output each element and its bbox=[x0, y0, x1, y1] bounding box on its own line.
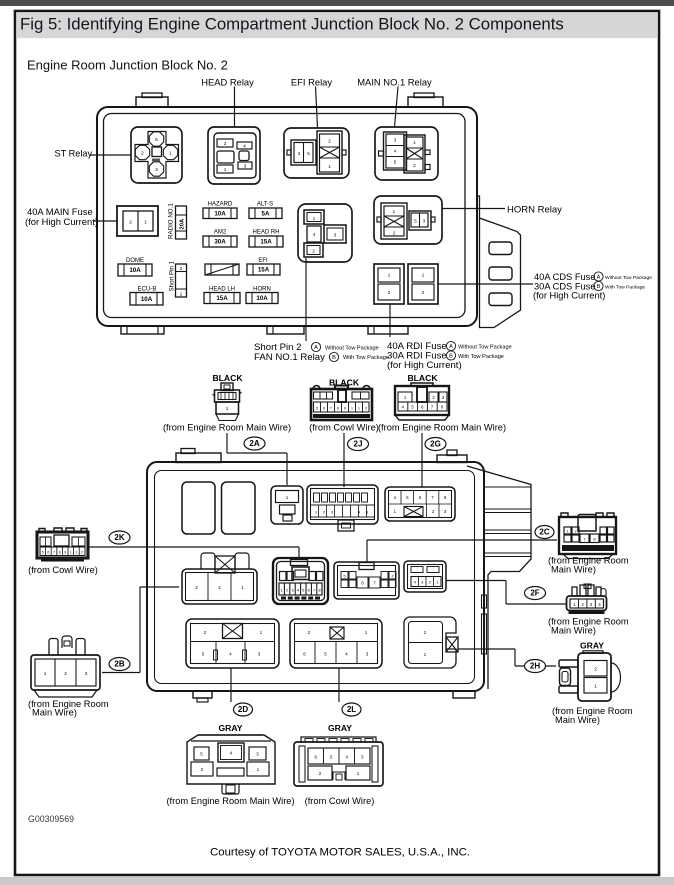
svg-text:G00309569: G00309569 bbox=[28, 814, 74, 824]
svg-text:2: 2 bbox=[388, 290, 391, 295]
svg-text:Fig 5: Identifying Engine Comp: Fig 5: Identifying Engine Compartment Ju… bbox=[20, 15, 564, 34]
svg-text:6: 6 bbox=[323, 407, 325, 411]
svg-text:8: 8 bbox=[337, 407, 339, 411]
svg-text:1: 1 bbox=[281, 589, 283, 593]
svg-text:HORN: HORN bbox=[253, 287, 271, 293]
svg-text:Short Pin 1: Short Pin 1 bbox=[169, 260, 176, 291]
svg-text:7: 7 bbox=[313, 589, 315, 593]
svg-text:5: 5 bbox=[155, 137, 158, 143]
svg-text:GRAY: GRAY bbox=[328, 723, 352, 733]
svg-text:Engine Room Junction Block No.: Engine Room Junction Block No. 2 bbox=[27, 58, 228, 73]
svg-text:2A: 2A bbox=[249, 439, 259, 448]
svg-text:10A: 10A bbox=[141, 296, 153, 303]
svg-text:5: 5 bbox=[42, 551, 44, 555]
svg-text:2: 2 bbox=[365, 407, 367, 411]
svg-text:2: 2 bbox=[141, 151, 144, 157]
svg-text:(from Cowl Wire): (from Cowl Wire) bbox=[28, 565, 98, 575]
svg-text:A: A bbox=[449, 344, 453, 350]
svg-text:2: 2 bbox=[422, 290, 425, 295]
svg-text:With Tow Package: With Tow Package bbox=[343, 355, 389, 361]
svg-text:Courtesy of TOYOTA MOTOR SALES: Courtesy of TOYOTA MOTOR SALES, U.S.A., … bbox=[210, 847, 470, 859]
svg-text:1: 1 bbox=[226, 406, 229, 411]
svg-text:B: B bbox=[332, 355, 336, 361]
svg-text:Main Wire): Main Wire) bbox=[551, 626, 596, 636]
svg-text:B: B bbox=[597, 284, 601, 290]
svg-text:HEAD Relay: HEAD Relay bbox=[201, 77, 254, 88]
svg-text:(from Cowl Wire): (from Cowl Wire) bbox=[305, 796, 375, 806]
svg-text:7: 7 bbox=[53, 551, 55, 555]
svg-text:2L: 2L bbox=[347, 705, 356, 714]
svg-text:1: 1 bbox=[144, 220, 147, 225]
svg-text:3: 3 bbox=[244, 164, 247, 169]
svg-text:1: 1 bbox=[44, 671, 47, 676]
svg-text:2G: 2G bbox=[430, 440, 441, 449]
svg-text:Main Wire): Main Wire) bbox=[551, 565, 596, 575]
svg-text:5: 5 bbox=[302, 589, 304, 593]
svg-text:2C: 2C bbox=[539, 528, 549, 537]
svg-text:2: 2 bbox=[129, 220, 132, 225]
svg-text:4: 4 bbox=[297, 589, 299, 593]
svg-text:(from Engine Room Main Wire): (from Engine Room Main Wire) bbox=[378, 423, 506, 433]
svg-text:10A: 10A bbox=[129, 267, 141, 274]
svg-text:A: A bbox=[314, 345, 318, 351]
svg-text:EFI Relay: EFI Relay bbox=[291, 77, 332, 88]
svg-text:1: 1 bbox=[180, 292, 183, 298]
svg-text:40A CDS Fuse: 40A CDS Fuse bbox=[534, 272, 596, 282]
svg-text:BLACK: BLACK bbox=[212, 373, 243, 383]
svg-text:ALT-S: ALT-S bbox=[257, 202, 273, 208]
svg-text:2: 2 bbox=[328, 139, 331, 144]
svg-text:1: 1 bbox=[169, 151, 172, 157]
svg-text:1: 1 bbox=[328, 164, 331, 169]
svg-text:BLACK: BLACK bbox=[407, 373, 438, 383]
svg-text:2: 2 bbox=[224, 141, 227, 146]
svg-text:2F: 2F bbox=[530, 589, 539, 598]
svg-text:1: 1 bbox=[422, 273, 425, 278]
svg-text:3: 3 bbox=[291, 589, 293, 593]
svg-text:FAN NO.1 Relay: FAN NO.1 Relay bbox=[254, 352, 325, 363]
svg-text:2: 2 bbox=[64, 671, 67, 676]
svg-text:10A: 10A bbox=[256, 295, 268, 302]
svg-text:HEAD LH: HEAD LH bbox=[209, 287, 235, 293]
svg-text:10A: 10A bbox=[214, 210, 226, 217]
svg-text:2H: 2H bbox=[530, 662, 540, 671]
svg-text:(for High Current): (for High Current) bbox=[533, 291, 605, 301]
svg-text:6: 6 bbox=[308, 589, 310, 593]
svg-text:(for High Current): (for High Current) bbox=[387, 360, 462, 371]
svg-text:B: B bbox=[449, 354, 453, 360]
svg-text:Without Tow Package: Without Tow Package bbox=[325, 346, 379, 352]
svg-text:2: 2 bbox=[594, 667, 597, 672]
svg-text:Without Tow Package: Without Tow Package bbox=[605, 275, 652, 281]
svg-text:2: 2 bbox=[391, 574, 393, 578]
svg-text:20A: 20A bbox=[180, 218, 186, 229]
svg-text:1: 1 bbox=[388, 273, 391, 278]
svg-text:3: 3 bbox=[85, 671, 88, 676]
svg-text:2: 2 bbox=[574, 530, 576, 534]
svg-text:2J: 2J bbox=[354, 440, 363, 449]
svg-text:9: 9 bbox=[344, 407, 346, 411]
svg-text:1: 1 bbox=[594, 684, 597, 689]
svg-text:Main Wire): Main Wire) bbox=[32, 708, 77, 718]
svg-text:(for High Current): (for High Current) bbox=[25, 216, 98, 227]
svg-text:7: 7 bbox=[330, 407, 332, 411]
svg-text:1: 1 bbox=[70, 551, 72, 555]
svg-text:2D: 2D bbox=[238, 705, 248, 714]
svg-text:30A: 30A bbox=[214, 239, 226, 246]
svg-text:HAZARD: HAZARD bbox=[208, 202, 233, 208]
svg-text:HORN Relay: HORN Relay bbox=[507, 205, 562, 216]
svg-text:2K: 2K bbox=[114, 533, 124, 542]
svg-text:9: 9 bbox=[64, 551, 66, 555]
svg-text:6: 6 bbox=[47, 551, 49, 555]
svg-text:1: 1 bbox=[358, 407, 360, 411]
svg-text:With Tow Package: With Tow Package bbox=[458, 354, 504, 360]
svg-text:ST Relay: ST Relay bbox=[55, 149, 93, 159]
svg-text:15A: 15A bbox=[260, 239, 272, 246]
svg-text:RADIO NO.1: RADIO NO.1 bbox=[168, 203, 175, 239]
svg-text:HEAD RH: HEAD RH bbox=[252, 230, 279, 236]
svg-text:8: 8 bbox=[59, 551, 61, 555]
svg-text:EFI: EFI bbox=[258, 258, 268, 264]
svg-text:2B: 2B bbox=[114, 660, 124, 669]
svg-text:3: 3 bbox=[155, 167, 158, 173]
svg-text:1: 1 bbox=[75, 551, 77, 555]
svg-text:5: 5 bbox=[316, 407, 318, 411]
svg-text:AM2: AM2 bbox=[214, 230, 227, 236]
svg-text:(from Engine Room Main Wire): (from Engine Room Main Wire) bbox=[163, 423, 291, 433]
svg-text:15A: 15A bbox=[258, 267, 270, 274]
svg-text:MAIN NO.1 Relay: MAIN NO.1 Relay bbox=[357, 77, 432, 88]
svg-text:1: 1 bbox=[566, 530, 568, 534]
svg-text:DOME: DOME bbox=[126, 258, 144, 264]
svg-text:GRAY: GRAY bbox=[580, 641, 604, 651]
svg-text:5: 5 bbox=[343, 574, 345, 578]
svg-text:(from Engine Room Main Wire): (from Engine Room Main Wire) bbox=[166, 796, 294, 806]
svg-text:(from Cowl Wire): (from Cowl Wire) bbox=[309, 423, 379, 433]
svg-text:Main Wire): Main Wire) bbox=[555, 715, 600, 725]
svg-text:GRAY: GRAY bbox=[218, 723, 242, 733]
svg-text:8: 8 bbox=[318, 589, 320, 593]
svg-text:5A: 5A bbox=[262, 210, 270, 217]
svg-text:2: 2 bbox=[286, 589, 288, 593]
svg-text:A: A bbox=[597, 275, 601, 281]
svg-text:ECU-B: ECU-B bbox=[138, 287, 157, 293]
svg-text:Without Tow Package: Without Tow Package bbox=[458, 345, 512, 351]
svg-text:15A: 15A bbox=[216, 295, 228, 302]
svg-text:With Tow Package: With Tow Package bbox=[605, 285, 645, 291]
svg-text:1: 1 bbox=[351, 407, 353, 411]
svg-text:2: 2 bbox=[81, 551, 83, 555]
svg-text:2: 2 bbox=[180, 266, 183, 272]
svg-text:4: 4 bbox=[243, 144, 246, 149]
svg-text:1: 1 bbox=[224, 167, 227, 172]
